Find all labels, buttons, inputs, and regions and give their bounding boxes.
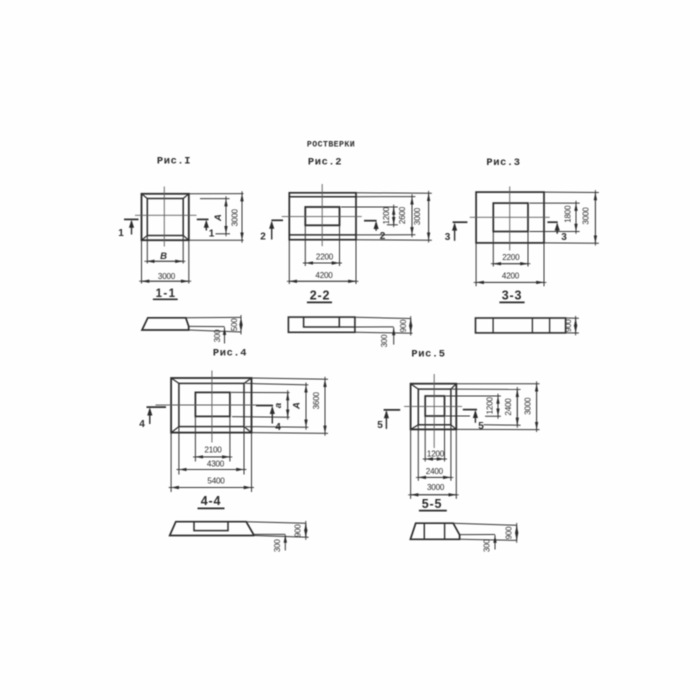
svg-text:3: 3 (561, 232, 567, 243)
svg-text:1-1: 1-1 (156, 288, 177, 300)
svg-text:3000: 3000 (427, 483, 445, 492)
svg-text:2: 2 (380, 231, 386, 242)
svg-text:3000: 3000 (413, 207, 422, 225)
svg-text:900: 900 (399, 319, 408, 332)
svg-text:1800: 1800 (564, 205, 573, 223)
svg-text:900: 900 (505, 526, 514, 539)
svg-text:500: 500 (230, 318, 239, 331)
svg-text:5-5: 5-5 (422, 497, 442, 511)
svg-text:300: 300 (482, 539, 491, 552)
svg-text:а: а (273, 403, 284, 408)
svg-text:300: 300 (380, 334, 389, 347)
svg-text:4200: 4200 (315, 271, 333, 280)
svg-text:3: 3 (445, 232, 451, 243)
svg-text:2600: 2600 (398, 206, 407, 224)
svg-text:4: 4 (275, 422, 281, 433)
svg-text:5: 5 (478, 421, 484, 432)
svg-text:Рис.5: Рис.5 (411, 349, 445, 361)
svg-text:4200: 4200 (502, 272, 520, 281)
svg-text:А: А (292, 402, 303, 410)
svg-text:5400: 5400 (207, 476, 225, 485)
svg-text:А: А (213, 214, 224, 222)
svg-text:Рис.3: Рис.3 (486, 157, 520, 169)
svg-text:3000: 3000 (231, 209, 240, 227)
svg-text:1: 1 (118, 228, 124, 239)
svg-text:5: 5 (377, 420, 383, 431)
svg-text:Рис.2: Рис.2 (308, 157, 342, 169)
svg-text:1200: 1200 (382, 207, 391, 225)
svg-text:1: 1 (209, 229, 215, 240)
svg-text:1200: 1200 (427, 450, 445, 459)
svg-text:3000: 3000 (582, 207, 591, 225)
svg-text:Рис.I: Рис.I (157, 156, 191, 168)
svg-text:3-3: 3-3 (502, 289, 522, 303)
svg-text:2100: 2100 (204, 446, 222, 455)
svg-text:300: 300 (273, 539, 282, 552)
svg-text:2200: 2200 (316, 252, 334, 261)
svg-text:3600: 3600 (312, 392, 321, 410)
svg-text:900: 900 (564, 319, 573, 332)
svg-text:2400: 2400 (426, 467, 444, 476)
svg-text:1200: 1200 (485, 397, 494, 415)
svg-text:2: 2 (260, 232, 266, 243)
svg-text:В: В (160, 251, 167, 262)
svg-text:2400: 2400 (504, 398, 513, 416)
svg-text:300: 300 (213, 329, 222, 342)
svg-text:3000: 3000 (523, 397, 532, 415)
svg-text:2-2: 2-2 (310, 288, 330, 302)
svg-text:3000: 3000 (158, 272, 176, 281)
svg-text:РОСТВЕРКИ: РОСТВЕРКИ (307, 141, 355, 150)
svg-text:Рис.4: Рис.4 (213, 348, 247, 360)
svg-text:4: 4 (139, 419, 145, 430)
svg-text:4300: 4300 (207, 459, 225, 468)
svg-text:4-4: 4-4 (201, 494, 221, 508)
svg-text:2200: 2200 (502, 253, 520, 262)
svg-text:900: 900 (293, 524, 302, 537)
